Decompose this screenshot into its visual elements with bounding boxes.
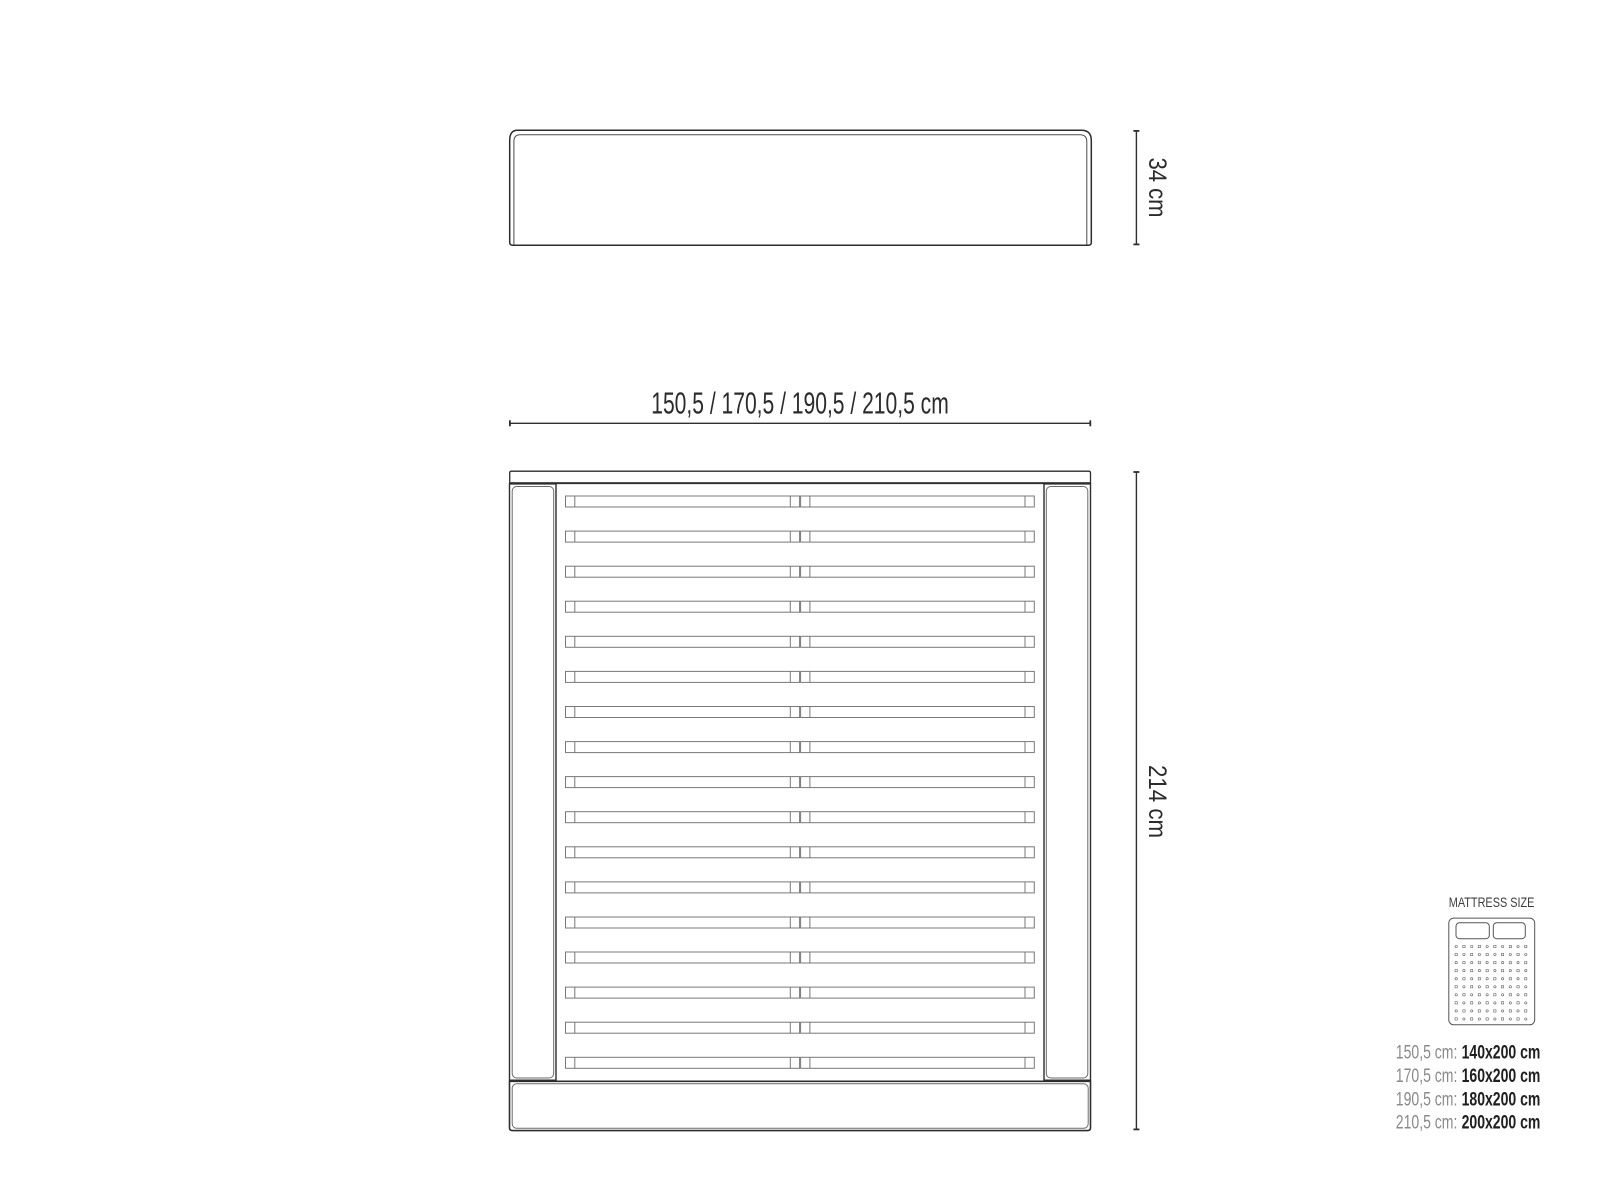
- svg-text:34 cm: 34 cm: [1143, 158, 1171, 218]
- svg-text:170,5 cm:: 170,5 cm:: [1396, 1065, 1458, 1087]
- svg-text:150,5 cm:: 150,5 cm:: [1396, 1042, 1458, 1064]
- svg-text:214 cm: 214 cm: [1143, 765, 1171, 838]
- svg-text:200x200 cm: 200x200 cm: [1462, 1112, 1541, 1134]
- svg-text:180x200 cm: 180x200 cm: [1462, 1088, 1541, 1110]
- svg-text:160x200 cm: 160x200 cm: [1462, 1065, 1541, 1087]
- svg-text:MATTRESS SIZE: MATTRESS SIZE: [1449, 895, 1535, 910]
- svg-text:140x200 cm: 140x200 cm: [1462, 1042, 1541, 1064]
- svg-text:150,5 / 170,5 / 190,5 / 210,5: 150,5 / 170,5 / 190,5 / 210,5 cm: [651, 387, 949, 421]
- svg-text:210,5 cm:: 210,5 cm:: [1396, 1112, 1458, 1134]
- svg-text:190,5 cm:: 190,5 cm:: [1396, 1088, 1458, 1110]
